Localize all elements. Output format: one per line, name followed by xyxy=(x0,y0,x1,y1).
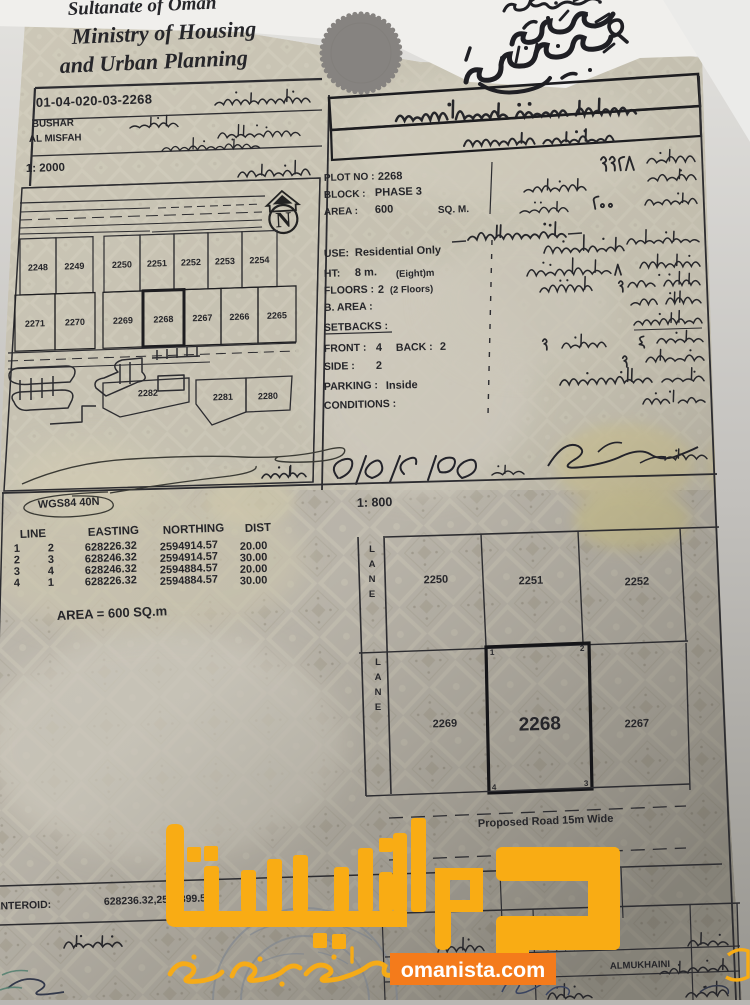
svg-text:2268: 2268 xyxy=(518,713,561,735)
svg-text:BLOCK :: BLOCK : xyxy=(324,189,366,201)
svg-text:HT:: HT: xyxy=(324,267,341,280)
svg-text:1: 2000: 1: 2000 xyxy=(26,162,65,175)
svg-text:AL MISFAH: AL MISFAH xyxy=(29,132,82,145)
svg-text:600: 600 xyxy=(375,203,394,216)
svg-text:1: 1 xyxy=(14,543,21,555)
svg-text:2280: 2280 xyxy=(258,391,278,402)
svg-text:2282: 2282 xyxy=(138,388,158,399)
svg-text:2268: 2268 xyxy=(378,170,403,183)
svg-text:2: 2 xyxy=(376,360,382,372)
svg-text:N: N xyxy=(275,207,292,233)
svg-text:omanista.com: omanista.com xyxy=(401,958,546,982)
svg-text:B. AREA :: B. AREA : xyxy=(324,300,373,314)
svg-text:2250: 2250 xyxy=(112,259,132,270)
svg-text:2250: 2250 xyxy=(423,574,448,587)
svg-text:3: 3 xyxy=(48,554,55,566)
svg-text:BUSHAR: BUSHAR xyxy=(32,118,74,130)
svg-text:2271: 2271 xyxy=(25,318,45,329)
svg-text:A: A xyxy=(369,559,376,570)
svg-text:2253: 2253 xyxy=(215,256,235,267)
svg-text:N: N xyxy=(369,574,376,585)
svg-text:2267: 2267 xyxy=(192,313,212,324)
svg-text:SQ. M.: SQ. M. xyxy=(438,204,470,216)
svg-text:2: 2 xyxy=(440,341,446,353)
svg-text:2: 2 xyxy=(14,554,21,566)
svg-text:2254: 2254 xyxy=(249,255,269,266)
svg-text:2270: 2270 xyxy=(65,317,85,328)
svg-text:PHASE 3: PHASE 3 xyxy=(375,186,422,199)
svg-text:Inside: Inside xyxy=(386,379,418,392)
svg-text:2265: 2265 xyxy=(267,310,287,321)
svg-text:E: E xyxy=(375,702,381,713)
svg-text:2: 2 xyxy=(580,644,585,653)
svg-text:BACK :: BACK : xyxy=(396,341,433,354)
svg-text:628226.32: 628226.32 xyxy=(85,574,137,588)
svg-text:30.00: 30.00 xyxy=(240,574,268,587)
svg-text:EASTING: EASTING xyxy=(88,525,140,539)
svg-text:2268: 2268 xyxy=(153,314,173,325)
svg-text:2267: 2267 xyxy=(624,718,649,731)
svg-text:2594884.57: 2594884.57 xyxy=(160,573,219,588)
svg-text:L: L xyxy=(369,544,375,555)
svg-text:2249: 2249 xyxy=(64,261,84,272)
svg-text:3: 3 xyxy=(584,779,589,788)
svg-text:2269: 2269 xyxy=(432,718,457,731)
svg-text:SIDE :: SIDE : xyxy=(324,360,355,373)
svg-text:1: 1 xyxy=(490,648,495,657)
svg-text:DIST: DIST xyxy=(245,522,272,535)
svg-text:PLOT NO :: PLOT NO : xyxy=(324,171,375,184)
svg-text:CONDITIONS :: CONDITIONS : xyxy=(324,398,397,412)
svg-text:3: 3 xyxy=(14,566,21,578)
svg-text:1: 1 xyxy=(48,577,55,589)
svg-text:A: A xyxy=(375,672,382,683)
svg-text:N: N xyxy=(375,687,382,698)
svg-text:AREA :: AREA : xyxy=(324,206,358,218)
svg-text:2248: 2248 xyxy=(28,262,48,273)
svg-text:2251: 2251 xyxy=(147,258,167,269)
svg-text:LINE: LINE xyxy=(20,528,47,541)
svg-text:(2 Floors): (2 Floors) xyxy=(390,284,434,296)
svg-text:2269: 2269 xyxy=(113,315,133,326)
svg-text:PARKING :: PARKING : xyxy=(324,379,378,393)
svg-text:2: 2 xyxy=(378,284,384,296)
svg-text:2: 2 xyxy=(48,542,55,554)
svg-text:2252: 2252 xyxy=(181,257,201,268)
svg-text:2281: 2281 xyxy=(213,392,233,403)
svg-text:(Eight)m: (Eight)m xyxy=(396,268,435,280)
svg-text:1: 800: 1: 800 xyxy=(357,495,393,510)
svg-text:2251: 2251 xyxy=(518,575,543,588)
svg-text:2252: 2252 xyxy=(624,576,649,589)
svg-text:8 m.: 8 m. xyxy=(355,266,377,279)
svg-text:FLOORS :: FLOORS : xyxy=(324,283,375,297)
svg-text:L: L xyxy=(375,657,381,668)
svg-text:ALMUKHAINI: ALMUKHAINI xyxy=(610,959,671,972)
svg-text:2266: 2266 xyxy=(229,311,249,322)
svg-text:E: E xyxy=(369,589,375,600)
svg-text:FRONT :: FRONT : xyxy=(324,342,367,355)
svg-text:CENTEROID:: CENTEROID: xyxy=(0,899,51,913)
svg-text:USE:: USE: xyxy=(324,247,349,260)
